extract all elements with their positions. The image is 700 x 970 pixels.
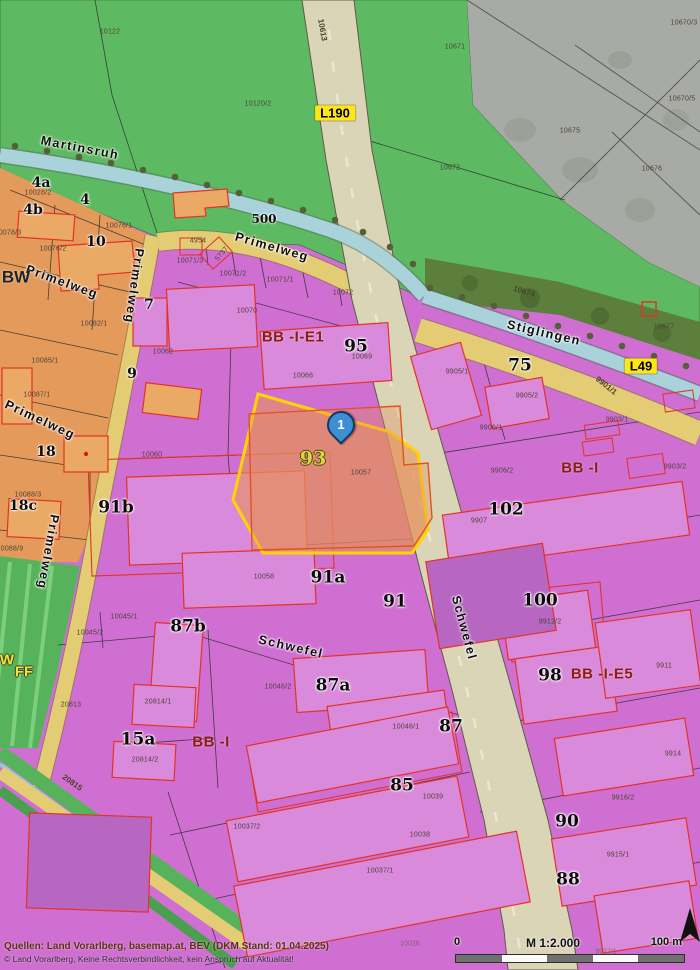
scale-bar-segments [455, 954, 685, 963]
attribution-sources: Quellen: Land Vorarlberg, basemap.at, BE… [4, 941, 329, 954]
scale-ratio: M 1:2.000 [526, 936, 580, 950]
north-arrow-icon [680, 908, 700, 946]
scale-max: 100 m [651, 936, 682, 948]
location-pin-label: 1 [329, 413, 353, 437]
attribution-copyright: © Land Vorarlberg, Keine Rechtsverbindli… [4, 954, 329, 965]
scale-bar: 0 M 1:2.000 100 m [450, 934, 688, 966]
scale-zero: 0 [454, 936, 460, 948]
map-canvas [0, 0, 700, 970]
attribution: Quellen: Land Vorarlberg, basemap.at, BE… [4, 941, 329, 964]
map-viewport[interactable]: 101221061310120/21067110670/310670/51067… [0, 0, 700, 970]
